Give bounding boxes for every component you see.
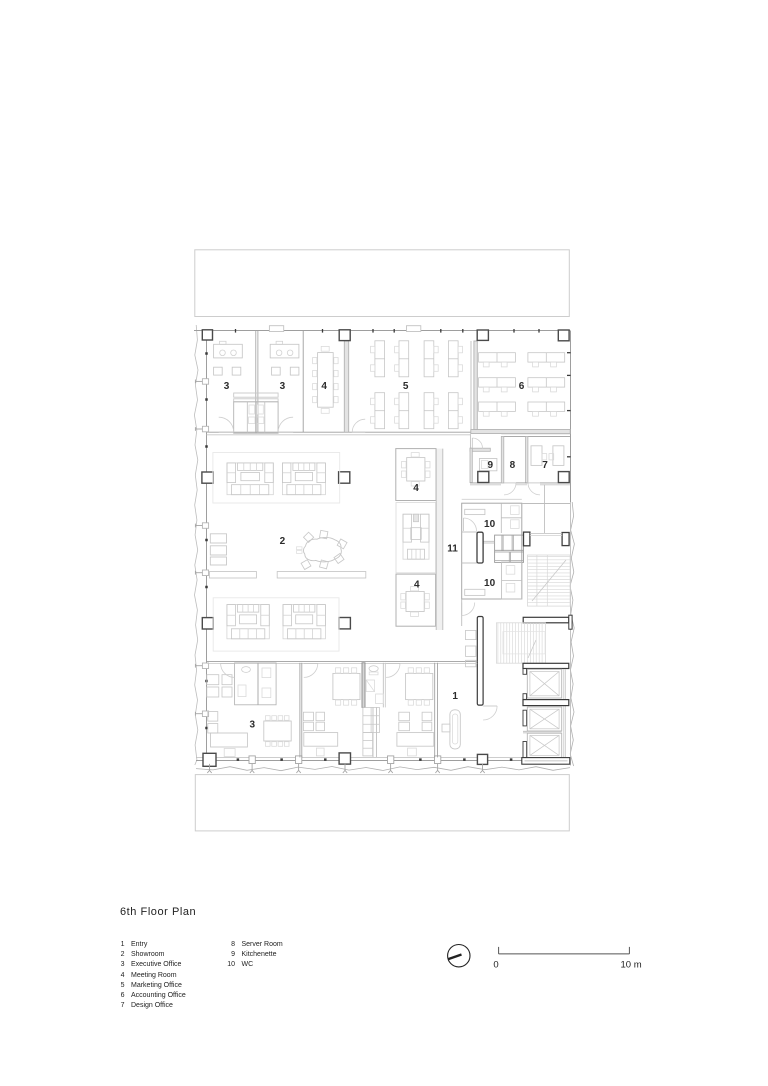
- svg-text:4: 4: [413, 483, 419, 494]
- svg-text:9: 9: [488, 460, 494, 471]
- svg-text:3: 3: [250, 719, 256, 730]
- svg-text:10: 10: [484, 578, 496, 589]
- svg-text:3: 3: [224, 381, 230, 392]
- svg-text:4: 4: [414, 580, 420, 591]
- svg-text:11: 11: [447, 544, 458, 555]
- svg-text:3: 3: [280, 381, 286, 392]
- svg-text:4: 4: [321, 381, 327, 392]
- svg-text:10: 10: [484, 519, 496, 530]
- svg-text:6: 6: [519, 381, 525, 392]
- svg-text:5: 5: [403, 381, 409, 392]
- svg-text:2: 2: [280, 536, 286, 547]
- svg-text:1: 1: [452, 691, 458, 702]
- svg-text:7: 7: [542, 460, 548, 471]
- svg-text:8: 8: [510, 460, 516, 471]
